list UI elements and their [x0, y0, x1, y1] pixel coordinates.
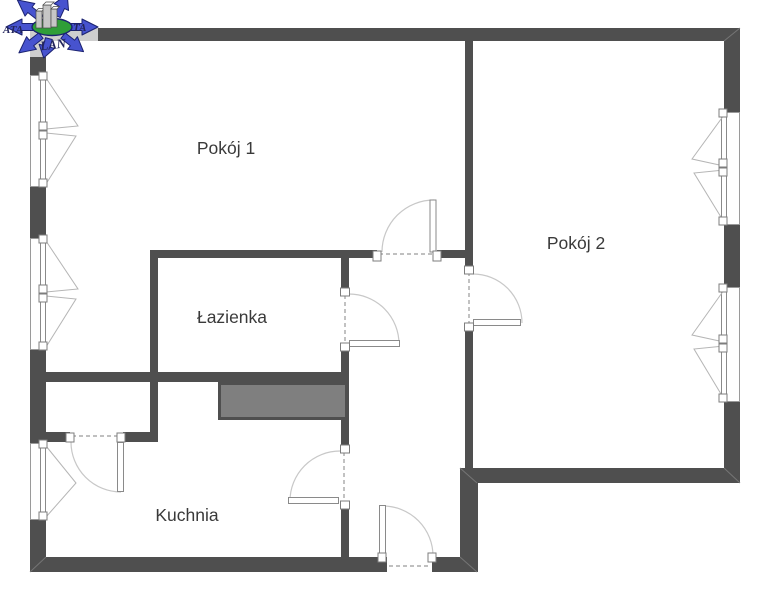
label-room1: Pokój 1: [197, 138, 255, 158]
door-leaf: [118, 443, 124, 492]
door-opening: [340, 450, 350, 503]
door-jamb-square: [433, 251, 441, 261]
door-jamb-square: [66, 433, 74, 442]
window-hinge-square: [39, 440, 47, 448]
door-jamb-square: [465, 266, 474, 274]
door-jamb-square: [378, 553, 386, 562]
window-glazing: [41, 445, 46, 519]
building-block: [43, 5, 51, 28]
floor-plan-canvas: Pokój 1 Pokój 2 Łazienka Kuchnia ATA TA …: [0, 0, 781, 599]
label-bathroom: Łazienka: [197, 307, 267, 327]
door-opening: [70, 432, 123, 442]
label-kitchen: Kuchnia: [155, 505, 219, 525]
wall-room-divider: [465, 41, 473, 468]
logo-text-right: TA: [73, 22, 86, 34]
wall-bathroom-bottom: [46, 372, 348, 382]
wall-bathroom-left: [150, 250, 158, 442]
building-block: [36, 11, 42, 28]
window-hinge-square: [39, 342, 47, 350]
window-hinge-square: [39, 235, 47, 243]
window-hinge-square: [719, 335, 727, 343]
door-opening: [387, 556, 432, 572]
logo-watermark: ATA TA LAN: [0, 0, 98, 60]
window-hinge-square: [719, 159, 727, 167]
door-leaf: [350, 341, 400, 347]
door-leaf: [474, 320, 521, 326]
door-jamb-square: [341, 501, 350, 509]
window-hinge-square: [719, 394, 727, 402]
window-hinge-square: [39, 131, 47, 139]
window-hinge-square: [39, 72, 47, 80]
window-hinge-square: [39, 179, 47, 187]
window-hinge-square: [719, 168, 727, 176]
wall-right: [724, 28, 740, 483]
wall-room2-bottom: [460, 468, 740, 483]
door-jamb-square: [428, 553, 436, 562]
background: [0, 0, 781, 599]
window-hinge-square: [719, 217, 727, 225]
window-hinge-square: [39, 285, 47, 293]
window-hinge-square: [39, 122, 47, 130]
logo-text-left: ATA: [2, 24, 23, 36]
window-hinge-square: [39, 294, 47, 302]
window-hinge-square: [719, 344, 727, 352]
door-jamb-square: [465, 323, 474, 331]
door-leaf: [380, 506, 386, 557]
window-hinge-square: [39, 512, 47, 520]
door-jamb-square: [341, 343, 350, 351]
building-block: [51, 9, 57, 27]
window-hinge-square: [719, 109, 727, 117]
duct-block: [220, 384, 347, 419]
window-hinge-square: [719, 284, 727, 292]
door-jamb-square: [341, 445, 350, 453]
door-leaf: [289, 498, 339, 504]
label-room2: Pokój 2: [547, 233, 605, 253]
door-jamb-square: [117, 433, 125, 442]
door-jamb-square: [341, 288, 350, 296]
door-leaf: [430, 200, 436, 252]
wall-step-vertical: [460, 468, 478, 572]
wall-top: [30, 28, 740, 41]
door-jamb-square: [373, 251, 381, 261]
